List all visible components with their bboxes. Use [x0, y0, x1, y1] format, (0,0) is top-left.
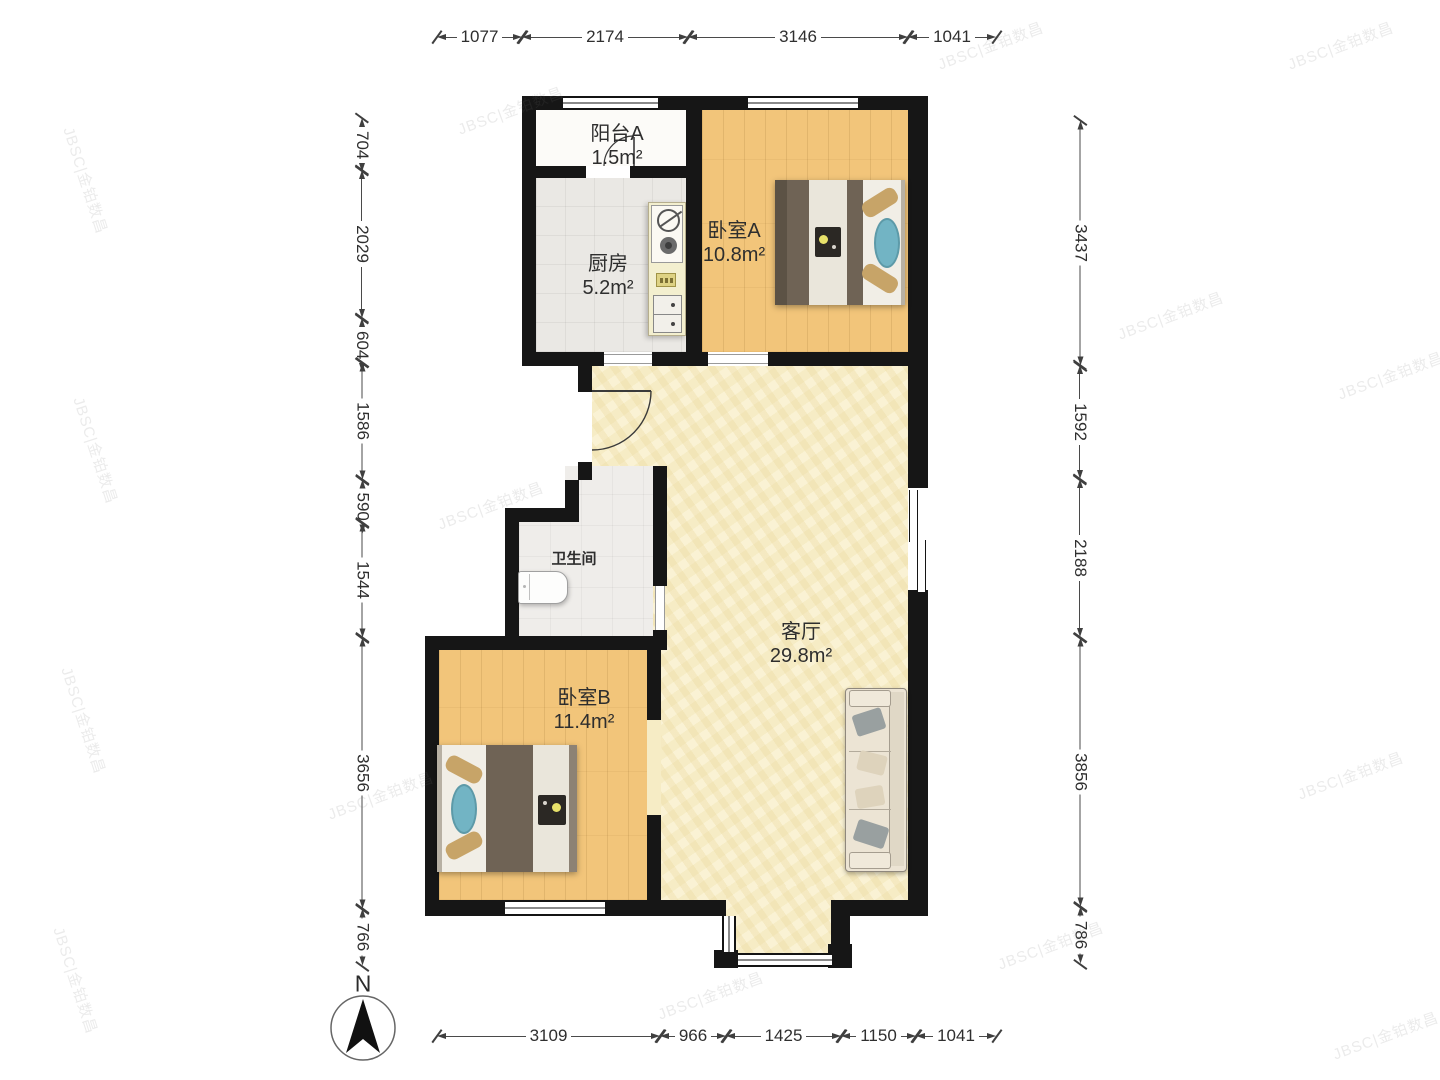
dim-value: 3146 [775, 27, 821, 47]
dim-value: 704 [352, 127, 372, 163]
dimension-bottom-1: 966 [660, 1026, 726, 1046]
dimension-top-0: 1077 [437, 27, 522, 47]
watermark-text: JBSC|金铂数昌 [1335, 347, 1440, 405]
dim-arrow-right [1077, 954, 1083, 963]
dim-line [1080, 129, 1081, 220]
doorway-bedroom-b [647, 720, 661, 815]
tray-candle [819, 235, 828, 244]
wall-segment [522, 352, 604, 366]
dim-line [362, 531, 363, 557]
dimension-right-1: 1592 [1070, 365, 1090, 479]
dimension-left-4: 590 [352, 479, 372, 522]
dim-arrow-left [1077, 365, 1083, 374]
north-arrow [346, 999, 380, 1053]
wall-segment [522, 166, 586, 178]
wall-segment [652, 352, 708, 366]
bed-b-tray [538, 795, 566, 825]
dim-line [446, 37, 457, 38]
dim-line [531, 37, 582, 38]
tray-candle [552, 803, 561, 812]
dimension-left-7: 766 [352, 908, 372, 965]
sofa-pillow-gray [851, 707, 886, 737]
dim-line [1080, 445, 1081, 470]
dimension-left-1: 2029 [352, 170, 372, 318]
dim-line [446, 1036, 526, 1037]
dim-line [979, 1036, 987, 1037]
wall-segment [647, 650, 661, 720]
bed-b-footboard [569, 745, 577, 872]
sink-drain [671, 322, 675, 326]
room-area: 5.2m² [582, 276, 633, 300]
dim-arrow-left [522, 34, 531, 40]
room-name: 卫生间 [551, 551, 596, 568]
dim-line [1080, 265, 1081, 356]
room-name: 卧室A [703, 219, 765, 243]
wall-segment [522, 96, 536, 366]
doorway-bedroom-a [708, 354, 768, 364]
dim-arrow-left [1077, 479, 1083, 488]
dim-value: 3856 [1070, 749, 1090, 795]
dimension-bottom-2: 1425 [726, 1026, 841, 1046]
dim-value: 1077 [457, 27, 503, 47]
dimension-bottom-0: 3109 [437, 1026, 660, 1046]
label-living-room: 客厅 29.8m² [770, 620, 832, 668]
wall-segment [653, 466, 667, 586]
sofa-backrest [889, 692, 904, 866]
bed-a [775, 180, 905, 305]
dim-line [735, 1036, 761, 1037]
dimension-left-0: 704 [352, 118, 372, 170]
bed-a-footboard [775, 180, 787, 305]
watermark-text: JBSC|金铂数昌 [325, 767, 437, 825]
bathtub [518, 571, 568, 604]
doorway-kitchen [604, 354, 652, 364]
dim-arrow-left [359, 522, 365, 531]
dimension-top-1: 2174 [522, 27, 688, 47]
dim-line [925, 1036, 933, 1037]
dim-line [362, 646, 363, 750]
watermark-text: JBSC|金铂数昌 [1285, 17, 1397, 75]
watermark-text: JBSC|金铂数昌 [68, 394, 122, 506]
compass-circle [331, 996, 395, 1060]
dimension-left-6: 3656 [352, 637, 372, 908]
dim-value: 1041 [933, 1026, 979, 1046]
bed-b-blanket [486, 745, 533, 872]
bed-a-headboard [901, 180, 905, 305]
dimension-bottom-4: 1041 [916, 1026, 996, 1046]
dim-arrow-left [688, 34, 697, 40]
window-bay-left [722, 916, 736, 952]
dimension-left-5: 1544 [352, 522, 372, 637]
sofa-pillow-gray [852, 819, 889, 850]
dim-arrow-left [908, 34, 917, 40]
wall-segment [605, 900, 726, 916]
dim-arrow-left [1077, 906, 1083, 915]
floorplan-canvas: N 阳台A 1.5m² 厨房 5.2m² 卧室A 10.8m² 卫生间 客厅 2… [0, 0, 1440, 1080]
dim-arrow-left [359, 170, 365, 179]
room-name: 阳台A [590, 122, 643, 146]
dim-value: 1150 [856, 1026, 901, 1046]
bathtub-drain [523, 585, 526, 588]
window-bedroom-b [505, 900, 605, 916]
wall-segment [425, 900, 505, 916]
sofa-armrest [849, 852, 891, 869]
wall-segment [425, 636, 661, 650]
wall-segment [578, 462, 592, 480]
stove [651, 205, 683, 263]
bed-a-round-pillow [874, 218, 900, 268]
dim-arrow-left [359, 318, 365, 327]
label-kitchen: 厨房 5.2m² [582, 252, 633, 300]
room-area: 1.5m² [590, 146, 643, 170]
dim-value: 1425 [761, 1026, 807, 1046]
sink-drain [671, 303, 675, 307]
dim-line [362, 443, 363, 470]
dim-line [697, 37, 775, 38]
wall-segment [578, 366, 592, 392]
dim-line [362, 371, 363, 398]
dim-arrow-left [726, 1033, 735, 1039]
dim-arrow-right [359, 956, 365, 965]
room-name: 厨房 [582, 252, 633, 276]
dim-line [1080, 794, 1081, 897]
dim-arrow-left [359, 637, 365, 646]
dim-line [362, 179, 363, 221]
dim-line [362, 267, 363, 309]
counter-widget [656, 273, 676, 287]
room-name: 卧室B [554, 686, 615, 710]
dim-value: 3109 [526, 1026, 572, 1046]
dim-arrow-left [437, 1033, 446, 1039]
dim-value: 590 [352, 488, 372, 524]
wall-segment [908, 96, 928, 488]
window-bay-bottom [738, 953, 832, 967]
dim-arrow-left [660, 1033, 669, 1039]
dim-line [1080, 374, 1081, 399]
room-name: 客厅 [770, 620, 832, 644]
window-living-right-upper [909, 490, 918, 542]
dim-value: 766 [352, 918, 372, 954]
widget-dot [665, 278, 668, 283]
wall-segment [768, 352, 928, 366]
dim-arrow-left [437, 34, 446, 40]
stove-burner [660, 237, 677, 254]
label-balcony-a: 阳台A 1.5m² [590, 122, 643, 170]
dim-arrow-left [1077, 637, 1083, 646]
window-bedroom-a [748, 96, 858, 110]
dim-line [502, 37, 513, 38]
wall-segment [505, 508, 519, 650]
room-area: 11.4m² [554, 710, 615, 734]
dimension-top-2: 3146 [688, 27, 908, 47]
dim-value: 966 [675, 1026, 711, 1046]
dim-arrow-left [841, 1033, 850, 1039]
bathtub-divider [529, 574, 530, 600]
label-bedroom-b: 卧室B 11.4m² [554, 686, 615, 734]
sofa [845, 688, 907, 872]
dim-line [1080, 581, 1081, 628]
dim-value: 3437 [1070, 220, 1090, 266]
watermark-text: JBSC|金铂数昌 [56, 664, 110, 776]
dim-line [821, 37, 899, 38]
wall-segment [908, 590, 928, 916]
compass-north-label: N [355, 971, 372, 998]
room-floor-bay-window [726, 886, 831, 953]
watermark-text: JBSC|金铂数昌 [1295, 747, 1407, 805]
dim-value: 1592 [1070, 399, 1090, 445]
sink-basin [654, 314, 681, 315]
label-bedroom-a: 卧室A 10.8m² [703, 219, 765, 267]
dim-arrow-left [359, 362, 365, 371]
dim-value: 1544 [352, 557, 372, 603]
dim-line [1080, 646, 1081, 749]
sofa-armrest [849, 690, 891, 707]
dim-arrow-left [1077, 120, 1083, 129]
dim-value: 2188 [1070, 535, 1090, 581]
dim-arrow-right [987, 1033, 996, 1039]
dimension-bottom-3: 1150 [841, 1026, 916, 1046]
dim-line [1080, 488, 1081, 535]
bed-b-round-pillow [451, 784, 477, 834]
dim-value: 2029 [352, 221, 372, 267]
dimension-left-3: 1586 [352, 362, 372, 479]
dim-line [628, 37, 679, 38]
dim-arrow-left [359, 908, 365, 917]
window-balcony [563, 96, 658, 110]
sofa-seam [849, 809, 891, 810]
window-living-right-lower [917, 540, 926, 592]
sofa-pillow [856, 750, 888, 776]
widget-dot [670, 278, 673, 283]
bed-b [437, 745, 577, 872]
dim-value: 1586 [352, 398, 372, 444]
tray-dot [832, 245, 836, 249]
watermark-text: JBSC|金铂数昌 [1330, 1007, 1440, 1065]
dim-line [806, 1036, 832, 1037]
label-bathroom: 卫生间 [551, 551, 596, 568]
dim-value: 2174 [582, 27, 628, 47]
doorway-bathroom [655, 586, 665, 630]
dim-arrow-left [359, 479, 365, 488]
sink [653, 295, 682, 333]
watermark-text: JBSC|金铂数昌 [48, 924, 102, 1036]
room-area: 29.8m² [770, 644, 832, 668]
dimension-right-3: 3856 [1070, 637, 1090, 906]
wall-segment [714, 950, 738, 968]
sofa-pillow [854, 785, 885, 810]
watermark-text: JBSC|金铂数昌 [58, 124, 112, 236]
dim-line [362, 602, 363, 628]
dim-arrow-left [359, 118, 365, 127]
dim-arrow-left [916, 1033, 925, 1039]
dimension-right-2: 2188 [1070, 479, 1090, 637]
dimension-right-0: 3437 [1070, 120, 1090, 365]
watermark-text: JBSC|金铂数昌 [655, 967, 767, 1025]
tray-dot [543, 801, 547, 805]
room-area: 10.8m² [703, 243, 765, 267]
kitchen-counter [648, 202, 686, 336]
widget-dot [660, 278, 663, 283]
doorway-entry [578, 392, 592, 462]
watermark-text: JBSC|金铂数昌 [1115, 287, 1227, 345]
dim-line [571, 1036, 651, 1037]
dimension-left-2: 604 [352, 318, 372, 362]
dim-line [917, 37, 929, 38]
bed-a-tray [815, 227, 841, 257]
wall-segment [686, 96, 702, 366]
